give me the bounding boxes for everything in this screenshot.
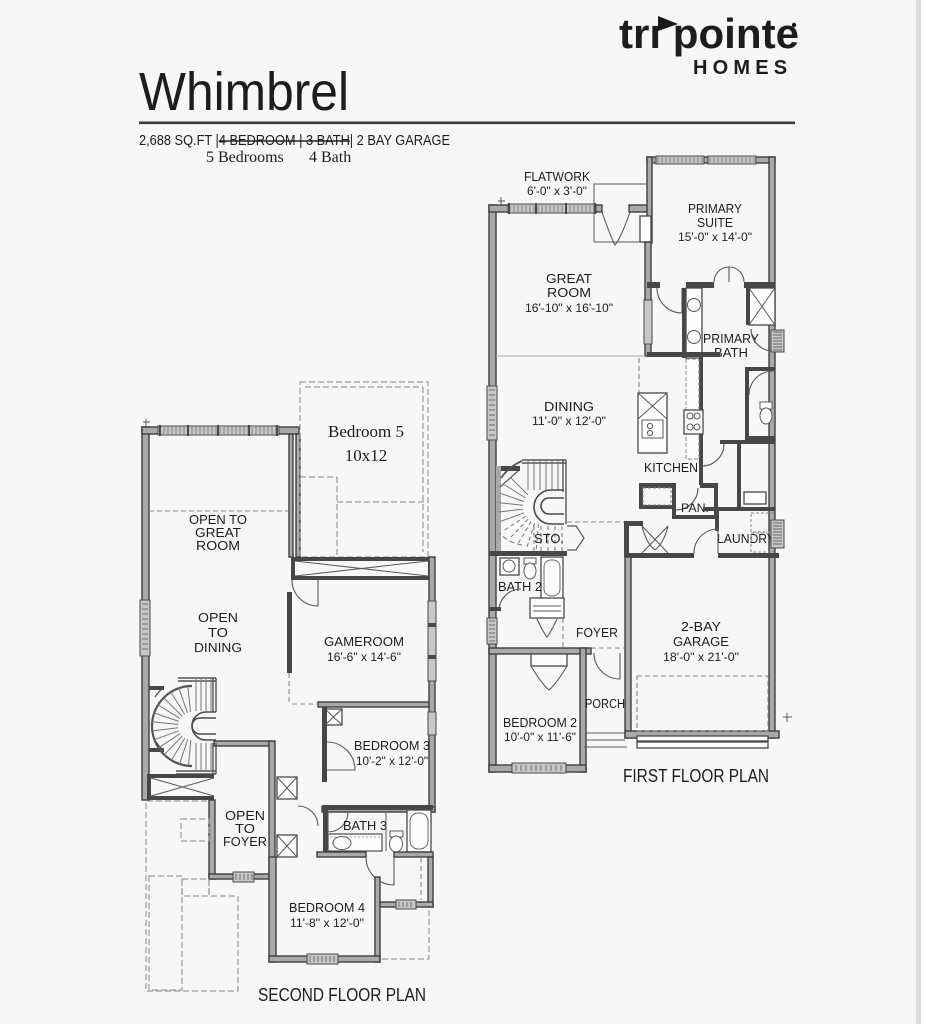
svg-text:KITCHEN: KITCHEN [644,460,698,475]
svg-text:HOMES: HOMES [693,57,792,79]
svg-text:FIRST FLOOR PLAN: FIRST FLOOR PLAN [623,766,769,786]
svg-text:FLATWORK: FLATWORK [524,169,590,184]
svg-text:2,688 SQ.FT |4 BEDROOM | 3 BAT: 2,688 SQ.FT |4 BEDROOM | 3 BATH| 2 BAY G… [139,133,450,149]
svg-text:11'-0" x 12'-0": 11'-0" x 12'-0" [532,414,606,428]
svg-text:6'-0" x 3'-0": 6'-0" x 3'-0" [527,184,587,198]
svg-text:BEDROOM 4: BEDROOM 4 [289,900,365,915]
svg-text:GREAT: GREAT [546,271,592,286]
svg-text:GARAGE: GARAGE [673,634,729,649]
svg-text:2-BAY: 2-BAY [681,619,721,634]
svg-text:GAMEROOM: GAMEROOM [324,634,404,649]
svg-text:16'-6" x 14'-6": 16'-6" x 14'-6" [327,650,401,664]
svg-text:Whimbrel: Whimbrel [139,62,349,122]
svg-text:BEDROOM 2: BEDROOM 2 [503,715,577,730]
svg-text:BATH 3: BATH 3 [343,818,387,833]
svg-text:PORCH: PORCH [585,696,625,711]
svg-text:16'-10" x 16'-10": 16'-10" x 16'-10" [525,301,613,315]
svg-text:DINING: DINING [544,399,594,414]
svg-text:OPEN: OPEN [198,610,238,625]
svg-text:18'-0" x 21'-0": 18'-0" x 21'-0" [663,650,739,664]
svg-text:FOYER: FOYER [223,834,267,849]
svg-text:STO.: STO. [534,531,564,546]
svg-text:15'-0" x 14'-0": 15'-0" x 14'-0" [678,230,752,244]
svg-text:trı pointe: trı pointe [619,10,799,57]
svg-text:10x12: 10x12 [345,446,388,465]
svg-text:SUITE: SUITE [697,215,733,230]
svg-text:10'-0" x 11'-6": 10'-0" x 11'-6" [504,730,576,744]
svg-text:ROOM: ROOM [196,538,240,553]
svg-text:BEDROOM 3: BEDROOM 3 [354,738,430,753]
svg-text:11'-8" x 12'-0": 11'-8" x 12'-0" [290,916,364,930]
svg-text:5 Bedrooms: 5 Bedrooms [206,149,284,166]
svg-text:FOYER: FOYER [576,625,618,640]
svg-text:PRIMARY: PRIMARY [688,201,742,216]
svg-text:Bedroom 5: Bedroom 5 [328,422,404,441]
svg-text:SECOND FLOOR PLAN: SECOND FLOOR PLAN [258,985,426,1005]
svg-text:BATH 2: BATH 2 [498,579,542,594]
svg-text:ROOM: ROOM [547,285,591,300]
svg-text:TO: TO [208,625,228,640]
svg-text:DINING: DINING [194,640,242,655]
svg-text:4 Bath: 4 Bath [309,149,351,166]
svg-text:10'-2" x 12'-0": 10'-2" x 12'-0" [356,754,428,768]
